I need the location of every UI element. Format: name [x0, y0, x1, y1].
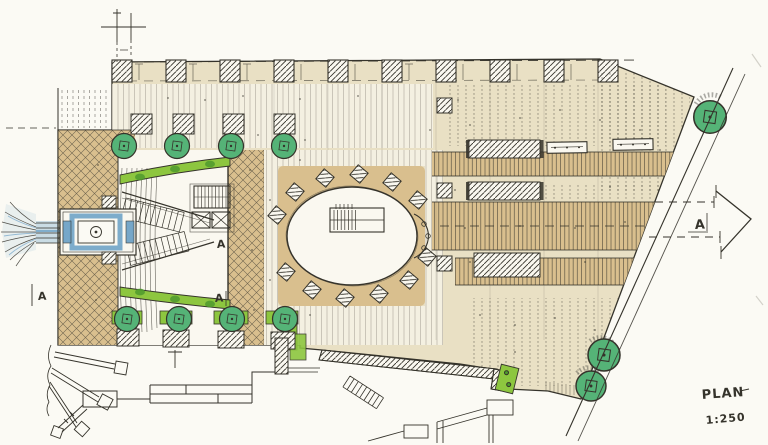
- tree: [165, 134, 190, 159]
- tree: [694, 101, 727, 134]
- tree: [220, 307, 245, 332]
- plan-label: PLAN: [701, 385, 745, 403]
- tree: [273, 307, 298, 332]
- section-marker-left: A: [38, 290, 48, 303]
- architectural-plan-sketch: A A A A: [0, 0, 768, 445]
- tree: [115, 307, 140, 332]
- tree: [272, 134, 297, 159]
- section-marker-center-upper: A: [216, 238, 226, 251]
- tree: [576, 371, 606, 401]
- section-arrow-label: A: [694, 217, 706, 233]
- tree: [167, 307, 192, 332]
- plan-drawing: A A A A: [0, 0, 768, 445]
- tree: [112, 134, 137, 159]
- tree: [219, 134, 244, 159]
- oval-court: [268, 165, 436, 307]
- section-marker-center-lower: A: [214, 292, 224, 305]
- tree: [588, 339, 620, 371]
